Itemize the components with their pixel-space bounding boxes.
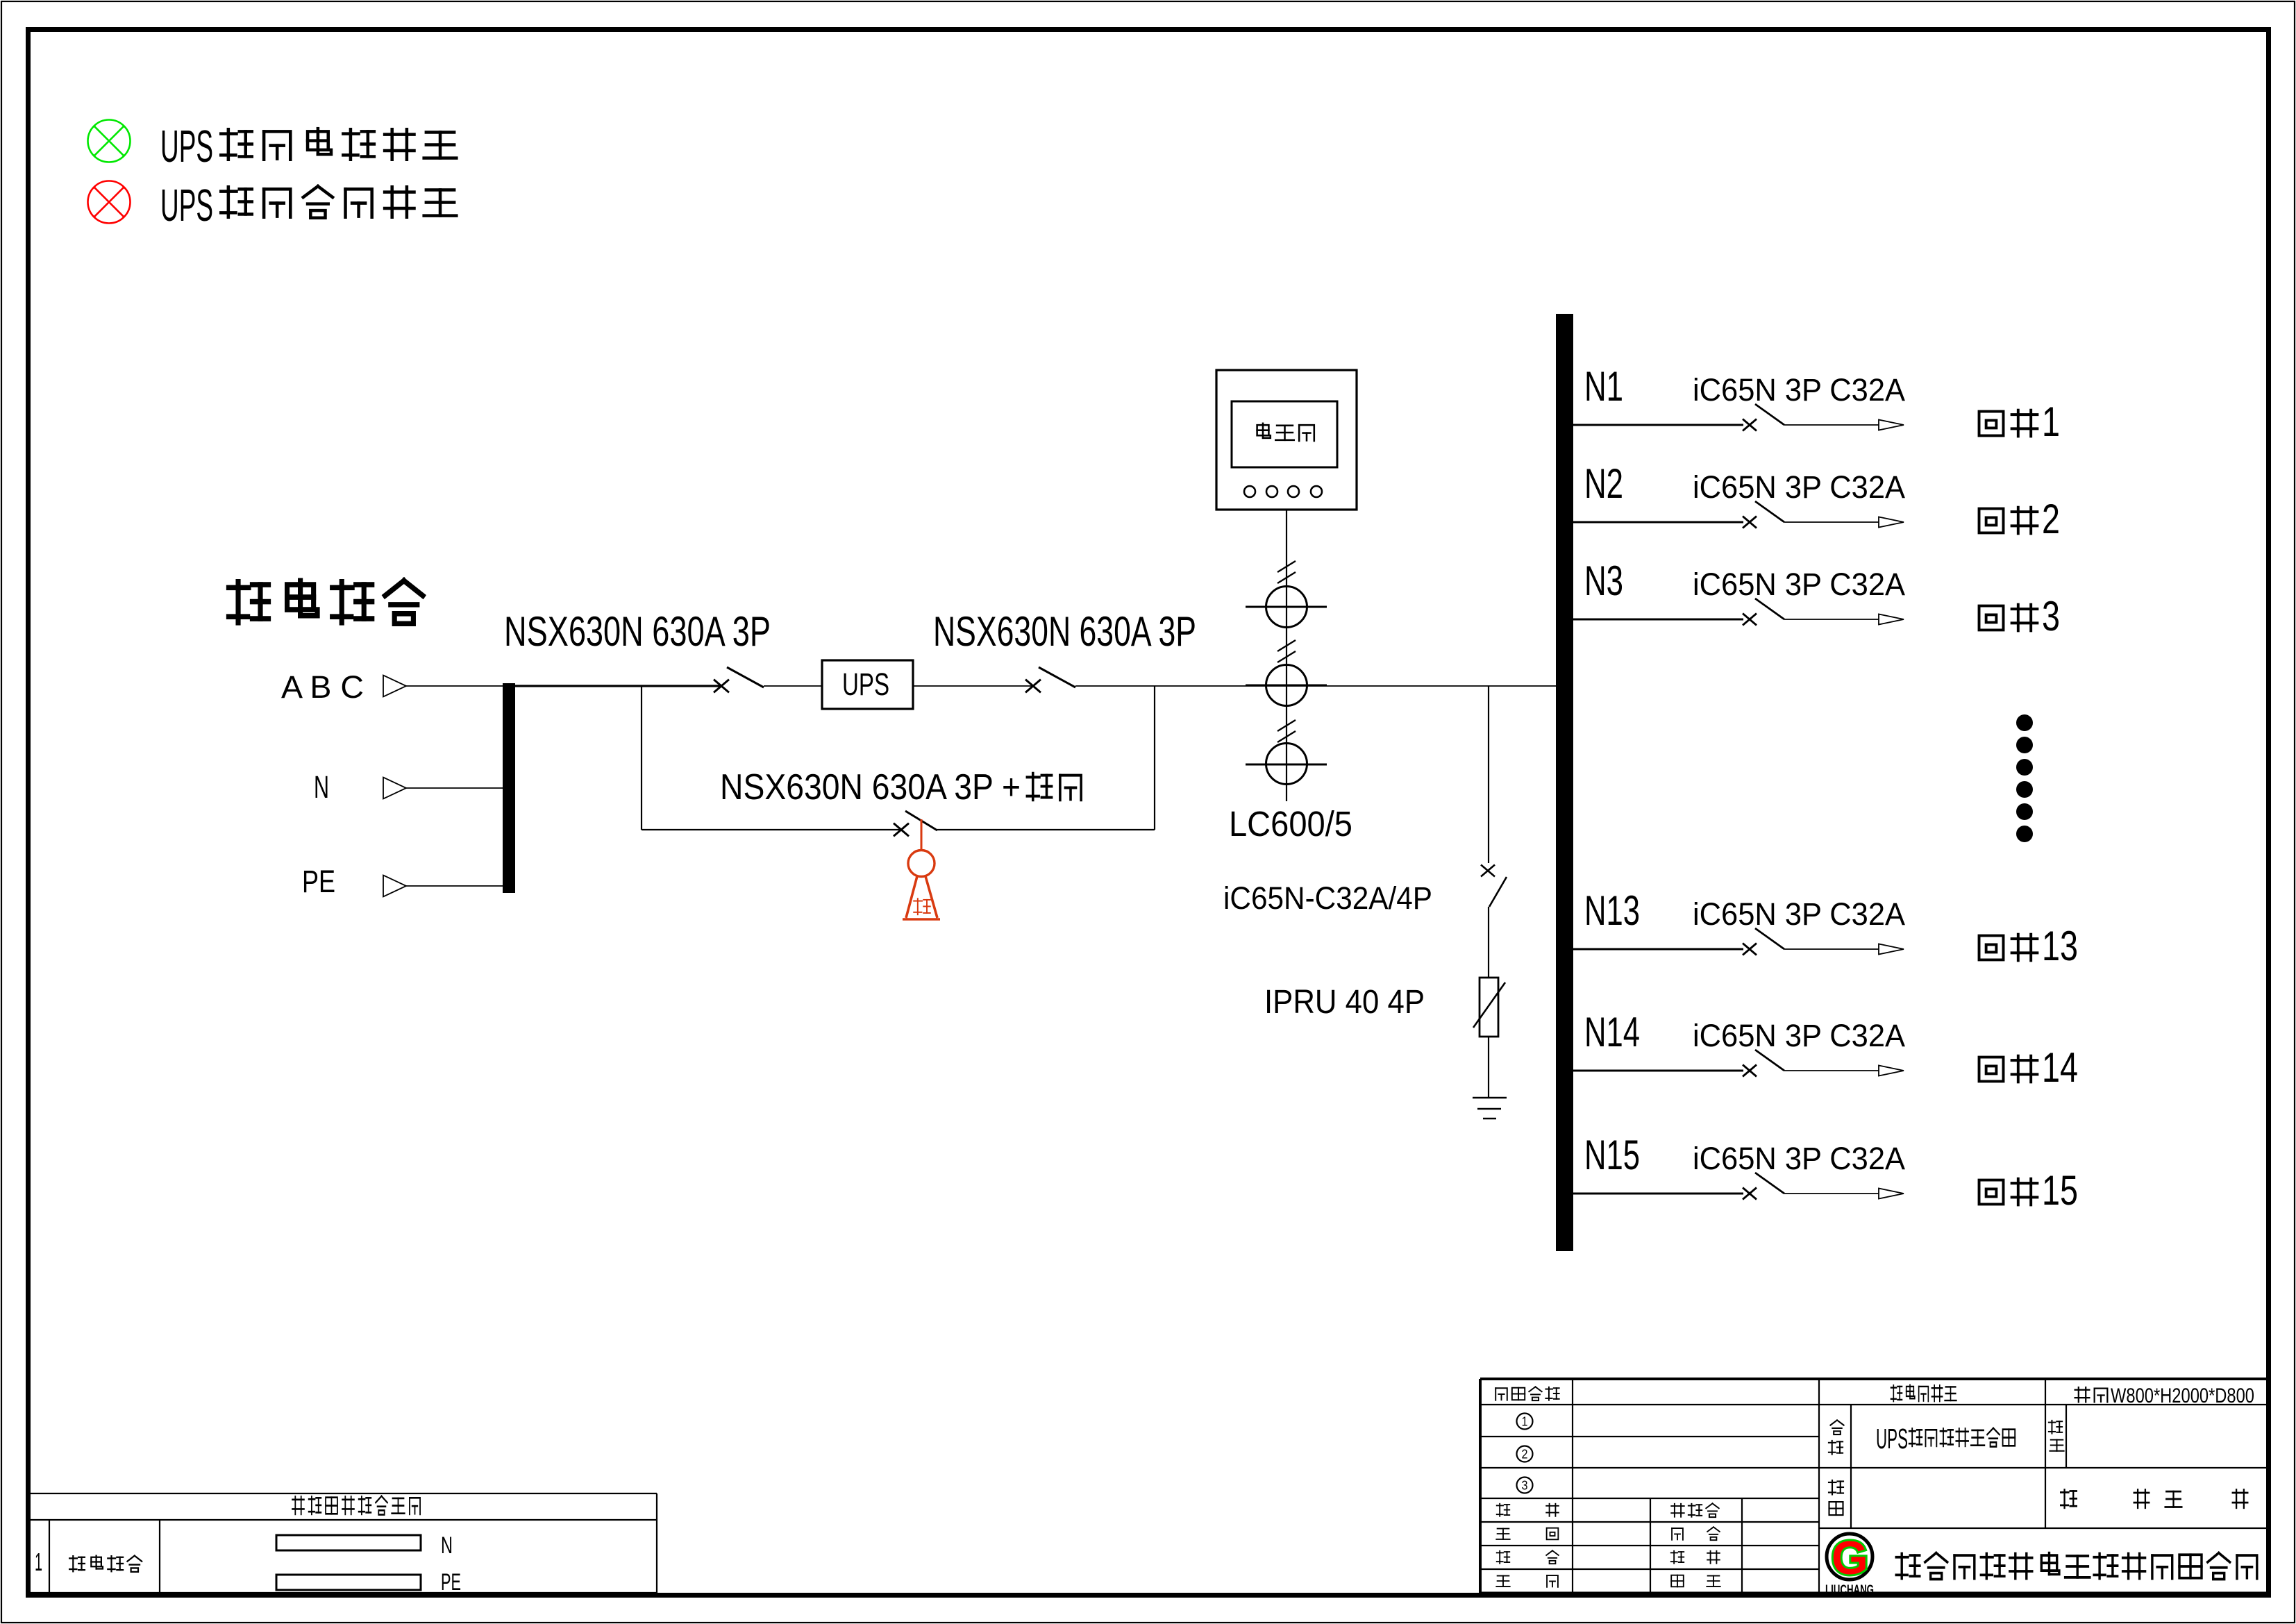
svg-text:LIUCHANG: LIUCHANG [1825,1583,1874,1598]
svg-text:A B C: A B C [281,669,364,705]
svg-text:N13: N13 [1584,887,1640,934]
svg-text:1: 1 [1522,1415,1528,1429]
svg-text:NSX630N 630A 3P: NSX630N 630A 3P [504,608,771,655]
svg-text:IPRU 40 4P: IPRU 40 4P [1264,984,1425,1021]
svg-text:iC65N-C32A/4P: iC65N-C32A/4P [1223,880,1432,916]
svg-text:iC65N 3P C32A: iC65N 3P C32A [1693,1018,1905,1053]
svg-text:UPS: UPS [160,121,213,171]
svg-text:N2: N2 [1584,460,1623,507]
svg-text:N3: N3 [1584,558,1623,604]
svg-text:LC600/5: LC600/5 [1229,804,1352,844]
svg-text:PE: PE [302,864,335,899]
svg-text:W800*H2000*D800: W800*H2000*D800 [2111,1384,2254,1407]
svg-text:UPS: UPS [842,667,889,702]
svg-text:iC65N 3P C32A: iC65N 3P C32A [1693,469,1905,505]
svg-text:UPS: UPS [160,180,213,231]
svg-text:PE: PE [441,1569,461,1596]
svg-text:3: 3 [2042,593,2060,639]
svg-text:2: 2 [1522,1448,1528,1462]
svg-text:N: N [314,769,329,805]
svg-text:1: 1 [35,1548,42,1576]
svg-text:1: 1 [2042,399,2060,445]
svg-text:iC65N 3P C32A: iC65N 3P C32A [1693,372,1905,408]
svg-text:15: 15 [2042,1167,2078,1214]
svg-text:N15: N15 [1584,1132,1640,1178]
svg-text:NSX630N 630A 3P: NSX630N 630A 3P [933,608,1196,655]
svg-text:iC65N 3P C32A: iC65N 3P C32A [1693,567,1905,602]
svg-text:2: 2 [2042,496,2060,542]
svg-text:iC65N 3P C32A: iC65N 3P C32A [1693,1141,1905,1176]
svg-text:3: 3 [1522,1479,1528,1493]
svg-text:N: N [441,1532,453,1559]
svg-text:UPS: UPS [1876,1423,1908,1455]
svg-text:14: 14 [2042,1044,2078,1091]
svg-text:NSX630N 630A 3P +: NSX630N 630A 3P + [720,767,1021,807]
svg-text:N14: N14 [1584,1009,1640,1055]
svg-text:13: 13 [2042,923,2078,969]
svg-text:N1: N1 [1584,363,1623,410]
svg-text:G: G [1832,1532,1868,1584]
svg-text:iC65N 3P C32A: iC65N 3P C32A [1693,896,1905,932]
